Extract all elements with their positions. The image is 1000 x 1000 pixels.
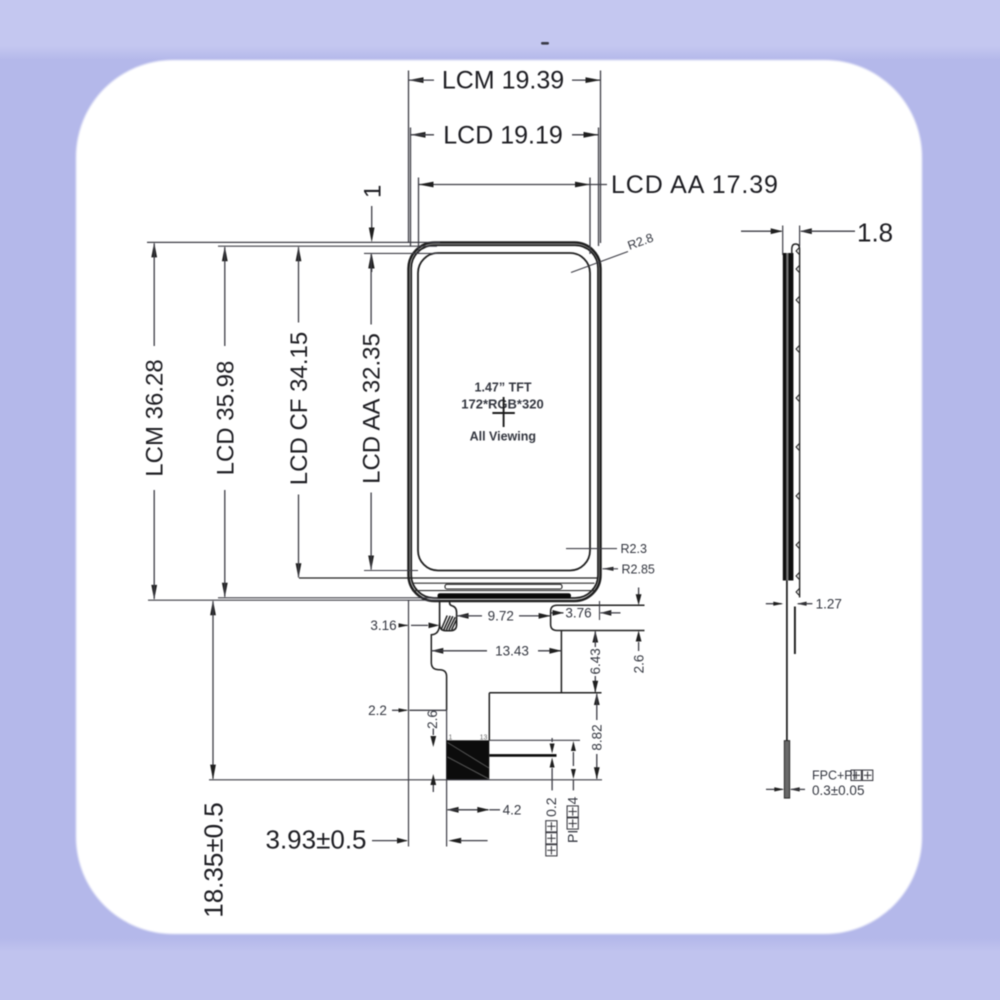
svg-text:8.82: 8.82 bbox=[589, 724, 604, 750]
svg-text:PI: PI bbox=[565, 830, 581, 843]
svg-text:172*RGB*320: 172*RGB*320 bbox=[461, 397, 543, 412]
svg-text:1: 1 bbox=[360, 185, 387, 198]
svg-text:LCD 19.19: LCD 19.19 bbox=[443, 121, 563, 149]
svg-text:9.72: 9.72 bbox=[488, 609, 514, 624]
svg-text:3.93±0.5: 3.93±0.5 bbox=[265, 825, 366, 855]
svg-text:6.43: 6.43 bbox=[588, 648, 603, 674]
svg-text:R2.8: R2.8 bbox=[626, 231, 656, 253]
svg-text:13.43: 13.43 bbox=[495, 644, 529, 659]
svg-text:3.76: 3.76 bbox=[565, 606, 591, 621]
svg-text:1.8: 1.8 bbox=[857, 218, 893, 248]
svg-text:LCD AA 17.39: LCD AA 17.39 bbox=[611, 171, 779, 199]
svg-text:2.6: 2.6 bbox=[425, 710, 440, 729]
svg-text:0.2: 0.2 bbox=[543, 797, 559, 817]
svg-text:R2.85: R2.85 bbox=[622, 562, 655, 576]
svg-text:All Viewing: All Viewing bbox=[470, 430, 536, 444]
svg-text:LCM 19.39: LCM 19.39 bbox=[442, 67, 564, 95]
svg-text:2.6: 2.6 bbox=[631, 655, 646, 674]
svg-text:1.27: 1.27 bbox=[816, 596, 842, 611]
svg-text:R2.3: R2.3 bbox=[621, 542, 647, 556]
svg-text:3.16: 3.16 bbox=[370, 618, 396, 633]
svg-text:18.35±0.5: 18.35±0.5 bbox=[199, 802, 229, 917]
svg-text:LCM 36.28: LCM 36.28 bbox=[142, 359, 169, 476]
svg-text:4.2: 4.2 bbox=[503, 803, 522, 818]
svg-text:LCD AA 32.35: LCD AA 32.35 bbox=[359, 333, 386, 484]
svg-text:LCD 35.98: LCD 35.98 bbox=[212, 361, 239, 476]
svg-text:1: 1 bbox=[449, 735, 453, 742]
svg-text:13: 13 bbox=[480, 735, 488, 742]
svg-text:1.47” TFT: 1.47” TFT bbox=[475, 381, 532, 395]
svg-text:LCD CF 34.15: LCD CF 34.15 bbox=[286, 332, 313, 485]
svg-text:4: 4 bbox=[565, 797, 581, 805]
svg-text:0.3±0.05: 0.3±0.05 bbox=[812, 783, 864, 798]
svg-text:2.2: 2.2 bbox=[368, 703, 387, 718]
svg-text:FPC+PI: FPC+PI bbox=[812, 769, 856, 783]
